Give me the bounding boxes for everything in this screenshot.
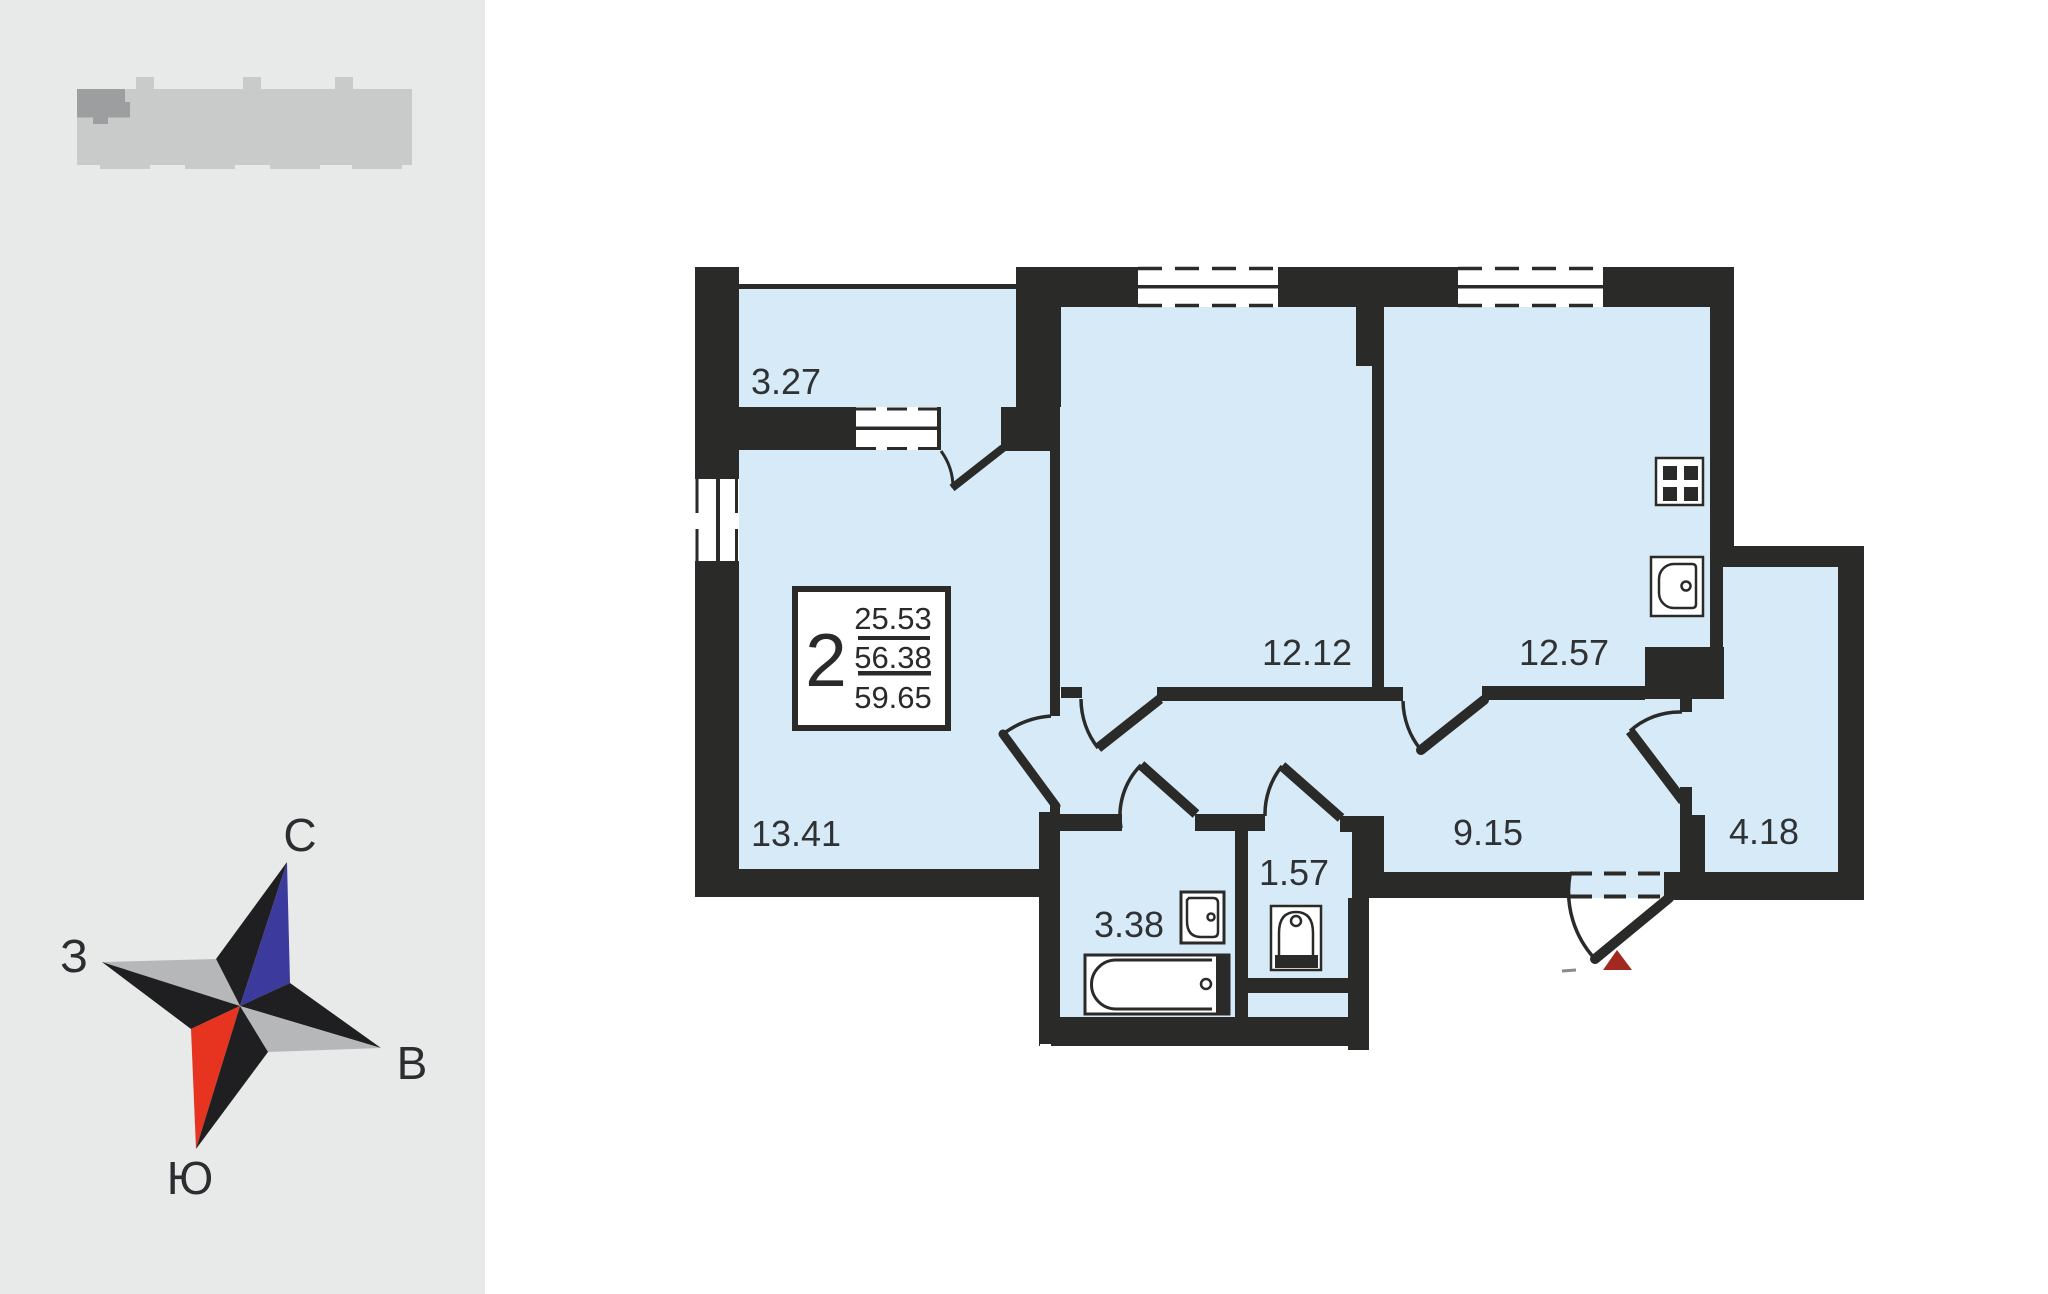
svg-text:9.15: 9.15 bbox=[1453, 812, 1523, 853]
svg-text:С: С bbox=[283, 809, 316, 861]
svg-text:13.41: 13.41 bbox=[751, 813, 841, 854]
svg-text:12.12: 12.12 bbox=[1262, 632, 1352, 673]
svg-text:З: З bbox=[60, 930, 88, 982]
svg-text:12.57: 12.57 bbox=[1519, 632, 1609, 673]
svg-text:4.18: 4.18 bbox=[1729, 811, 1799, 852]
svg-text:Ю: Ю bbox=[167, 1152, 213, 1204]
svg-text:56.38: 56.38 bbox=[854, 640, 932, 675]
svg-text:25.53: 25.53 bbox=[854, 601, 932, 636]
svg-text:3.38: 3.38 bbox=[1094, 904, 1164, 945]
svg-text:59.65: 59.65 bbox=[854, 680, 932, 715]
svg-text:3.27: 3.27 bbox=[751, 361, 821, 402]
svg-text:В: В bbox=[397, 1037, 428, 1089]
svg-text:1.57: 1.57 bbox=[1259, 852, 1329, 893]
svg-text:2: 2 bbox=[805, 618, 847, 702]
